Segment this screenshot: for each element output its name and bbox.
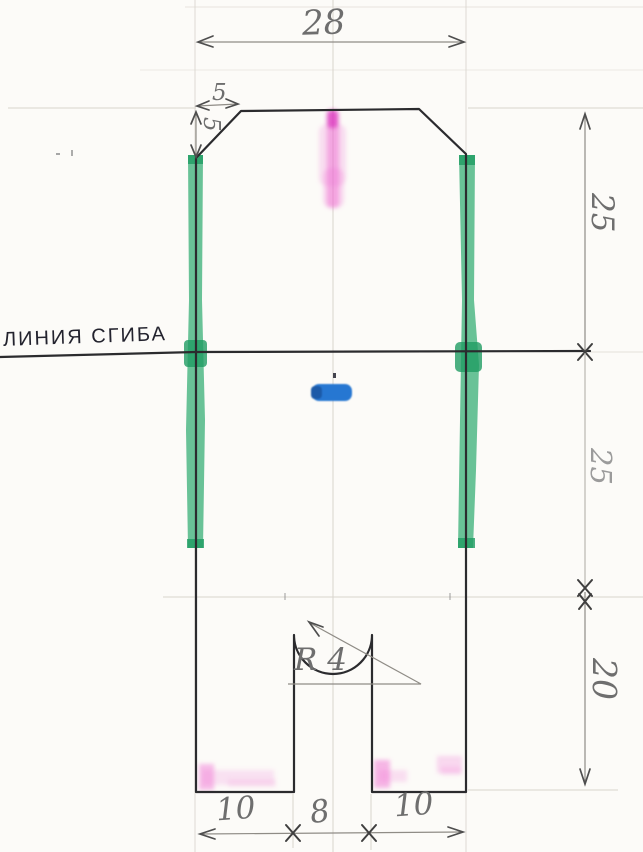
fold-line: [0, 351, 590, 357]
pattern-drawing-sheet: ЛИНИЯ СГИБА 28 5 5 25 25 20 R 4 10 8 10: [0, 0, 643, 852]
dim-top-width-label: 28: [301, 5, 345, 40]
dim-upper-section-label: 25: [586, 193, 617, 232]
dim-upper-section: [578, 114, 592, 360]
dim-chamfer-width-label: 5: [212, 82, 227, 105]
dim-slot-width-label: 8: [308, 796, 332, 829]
dim-left-leg-width-label: 10: [215, 793, 257, 827]
drawing-canvas: [0, 0, 643, 852]
dim-slot-radius-label: R 4: [294, 645, 347, 676]
dim-chamfer-height-label: 5: [199, 117, 222, 132]
blue-marker-blob: [311, 384, 352, 401]
pattern-outline: [196, 109, 466, 792]
dim-lower-section-label: 25: [586, 448, 615, 485]
dim-right-leg-width-label: 10: [393, 789, 435, 823]
dim-leg-section-label: 20: [588, 658, 621, 700]
pink-marker-smudges: [199, 110, 462, 790]
pencil-dot: [333, 373, 336, 378]
